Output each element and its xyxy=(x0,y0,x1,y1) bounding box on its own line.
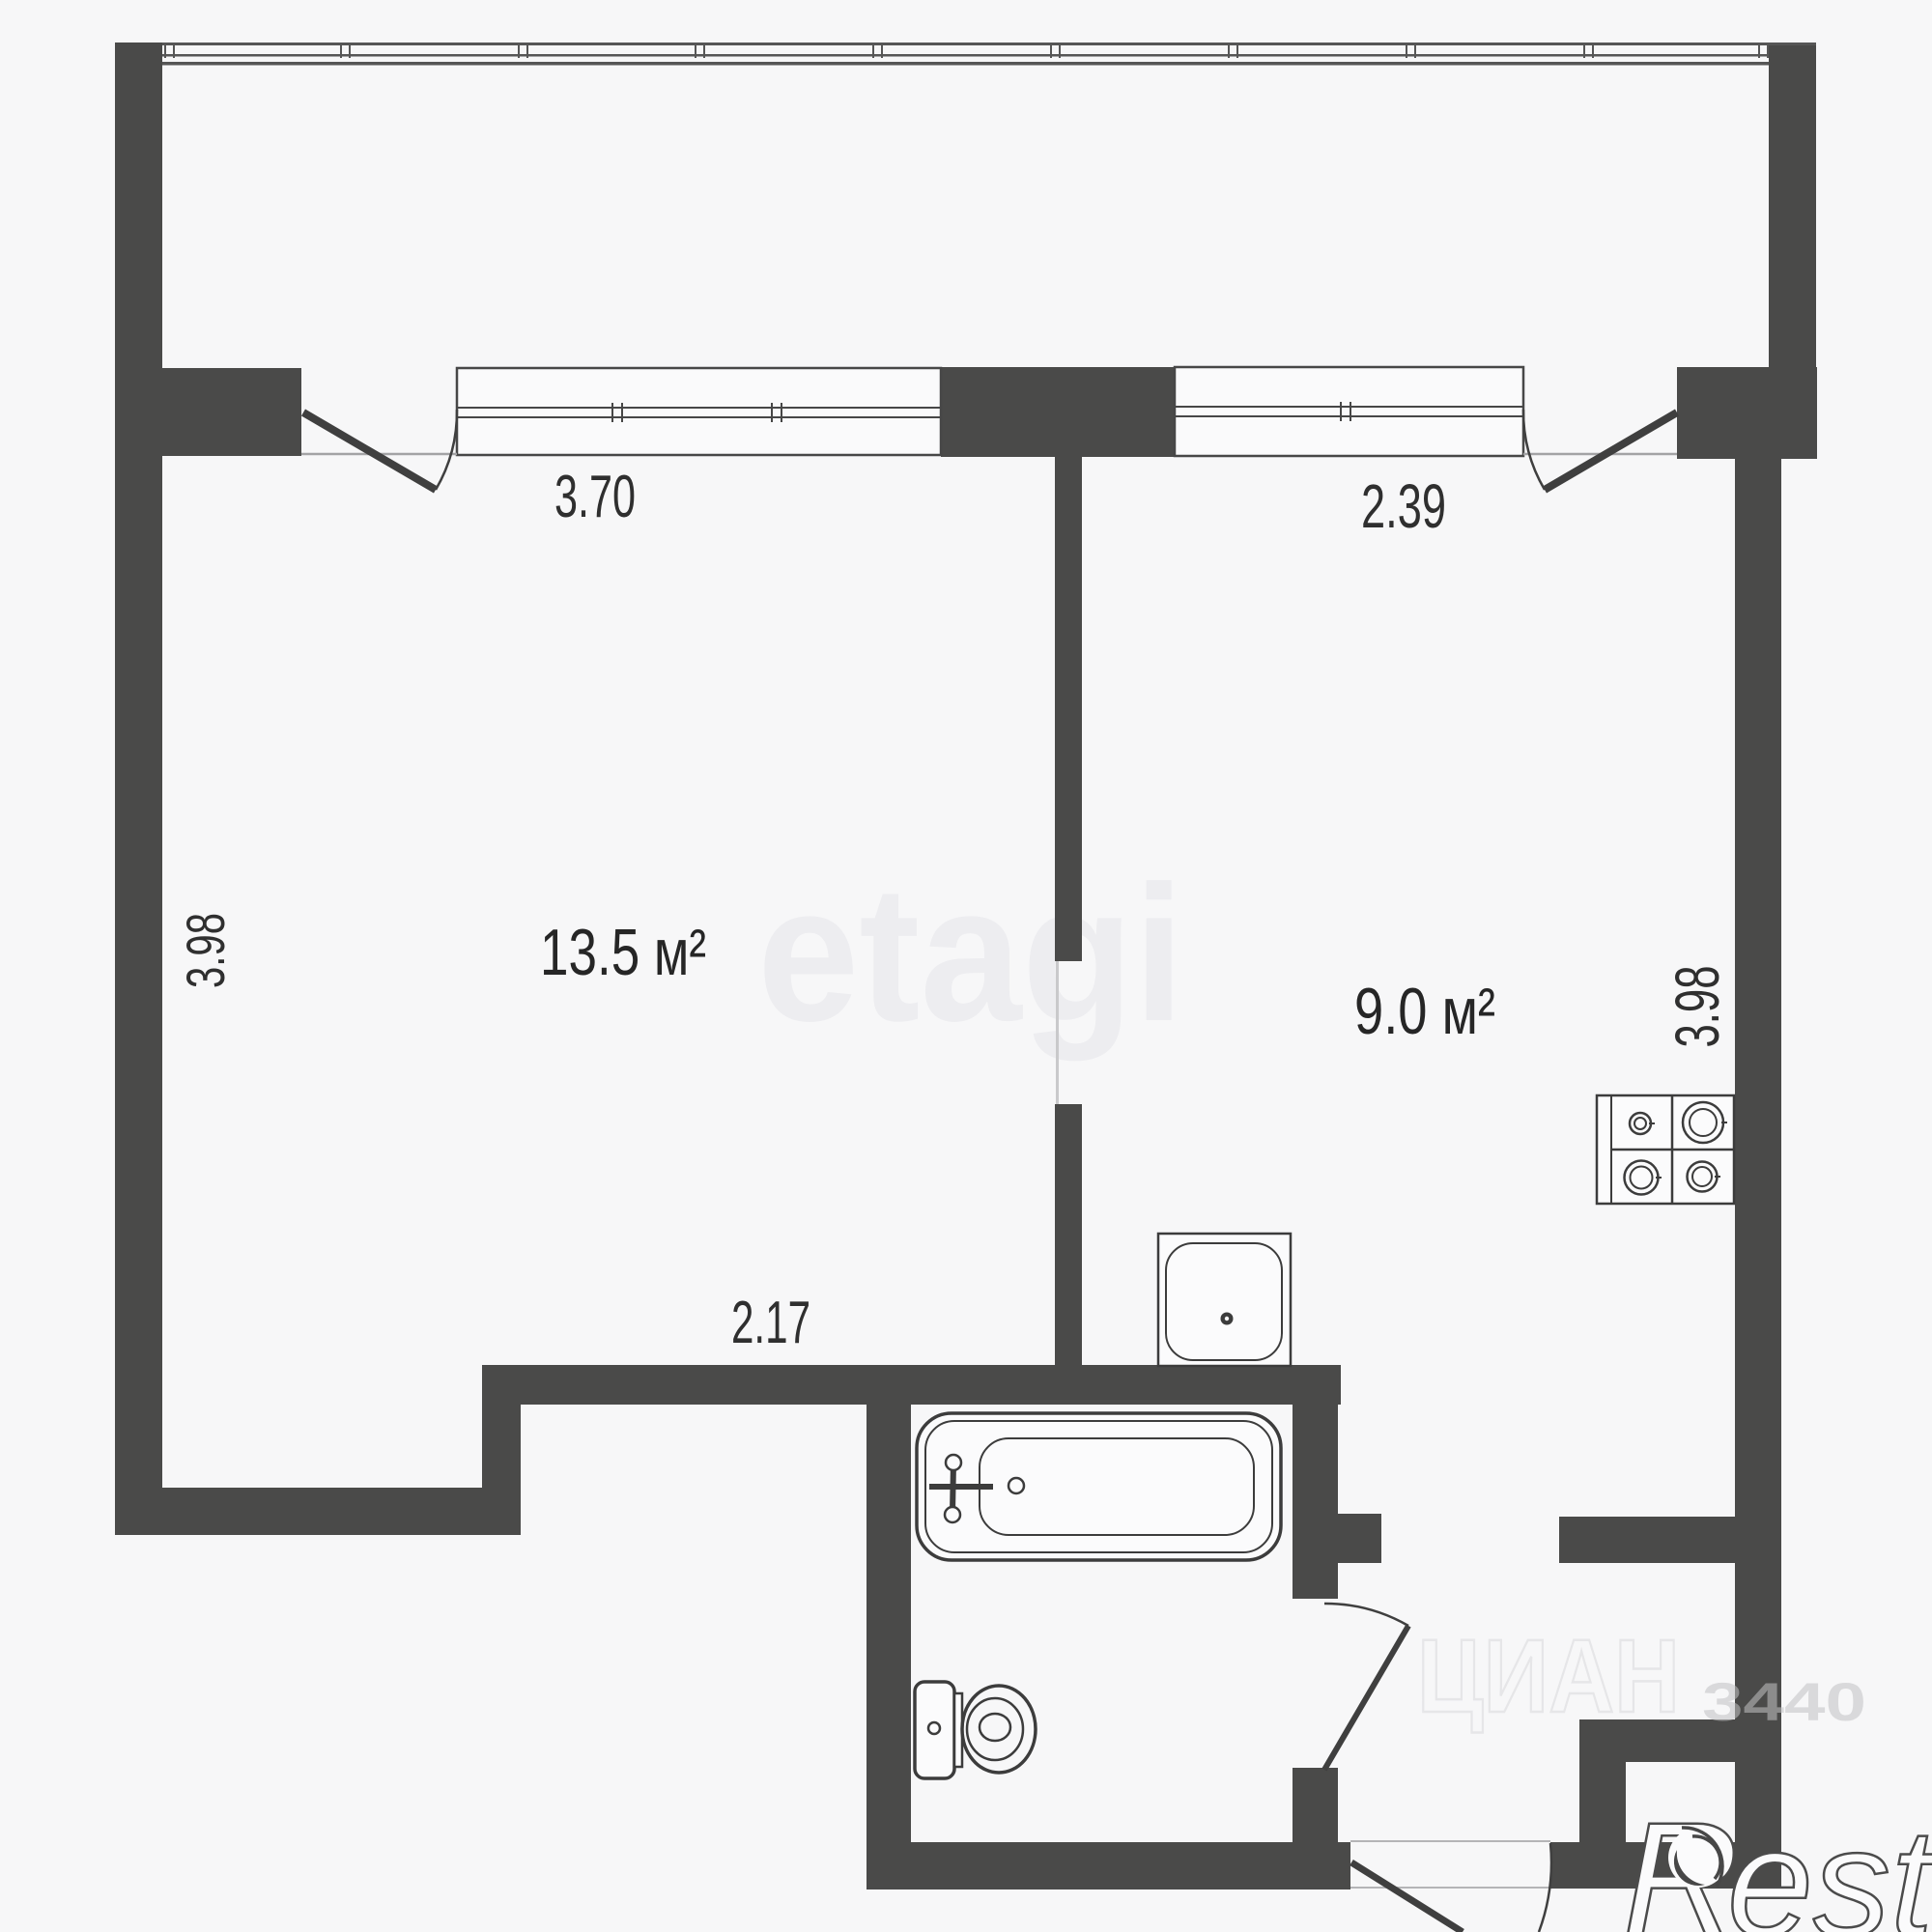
svg-text:13.5 м²: 13.5 м² xyxy=(540,916,706,989)
svg-text:9.0 м²: 9.0 м² xyxy=(1354,975,1495,1048)
svg-text:2.17: 2.17 xyxy=(731,1290,810,1356)
svg-text:estate: estate xyxy=(1727,1796,1932,1932)
svg-text:3440: 3440 xyxy=(1702,1671,1866,1732)
svg-text:2.39: 2.39 xyxy=(1361,471,1446,541)
svg-text:3.98: 3.98 xyxy=(1662,966,1732,1048)
svg-text:ЦИАН: ЦИАН xyxy=(1417,1617,1680,1734)
svg-text:3.70: 3.70 xyxy=(554,464,636,530)
svg-text:etagi: etagi xyxy=(757,846,1184,1062)
svg-text:3.98: 3.98 xyxy=(175,913,236,988)
